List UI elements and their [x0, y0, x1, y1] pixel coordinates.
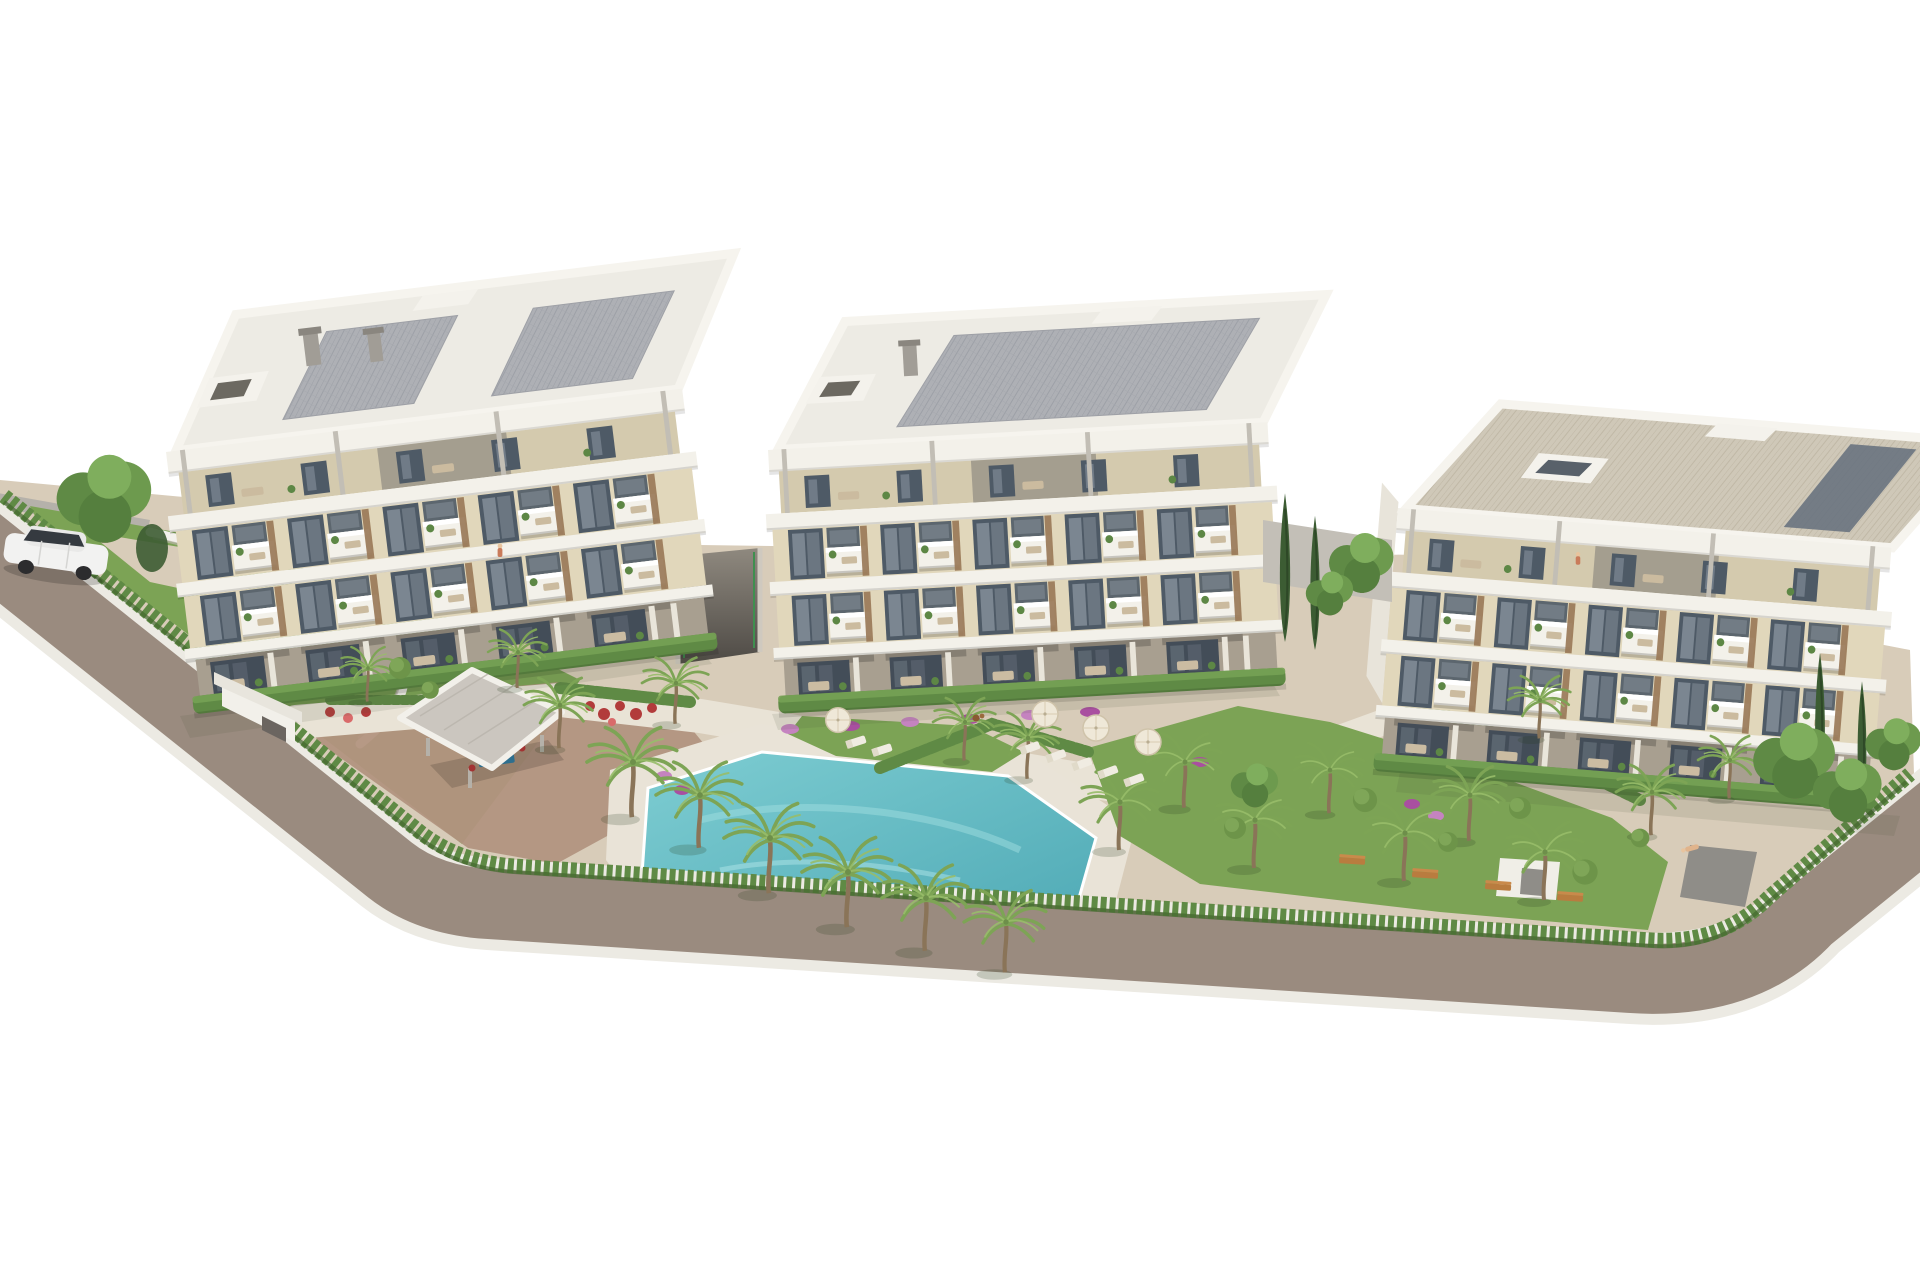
garden-bench	[1339, 854, 1366, 865]
building-right	[1359, 395, 1920, 822]
render-canvas	[0, 0, 1920, 1280]
building-left	[144, 253, 782, 718]
architectural-render	[0, 0, 1920, 1280]
building-center	[755, 295, 1348, 718]
person	[498, 544, 503, 557]
person	[1576, 552, 1581, 565]
parasol	[826, 708, 851, 733]
